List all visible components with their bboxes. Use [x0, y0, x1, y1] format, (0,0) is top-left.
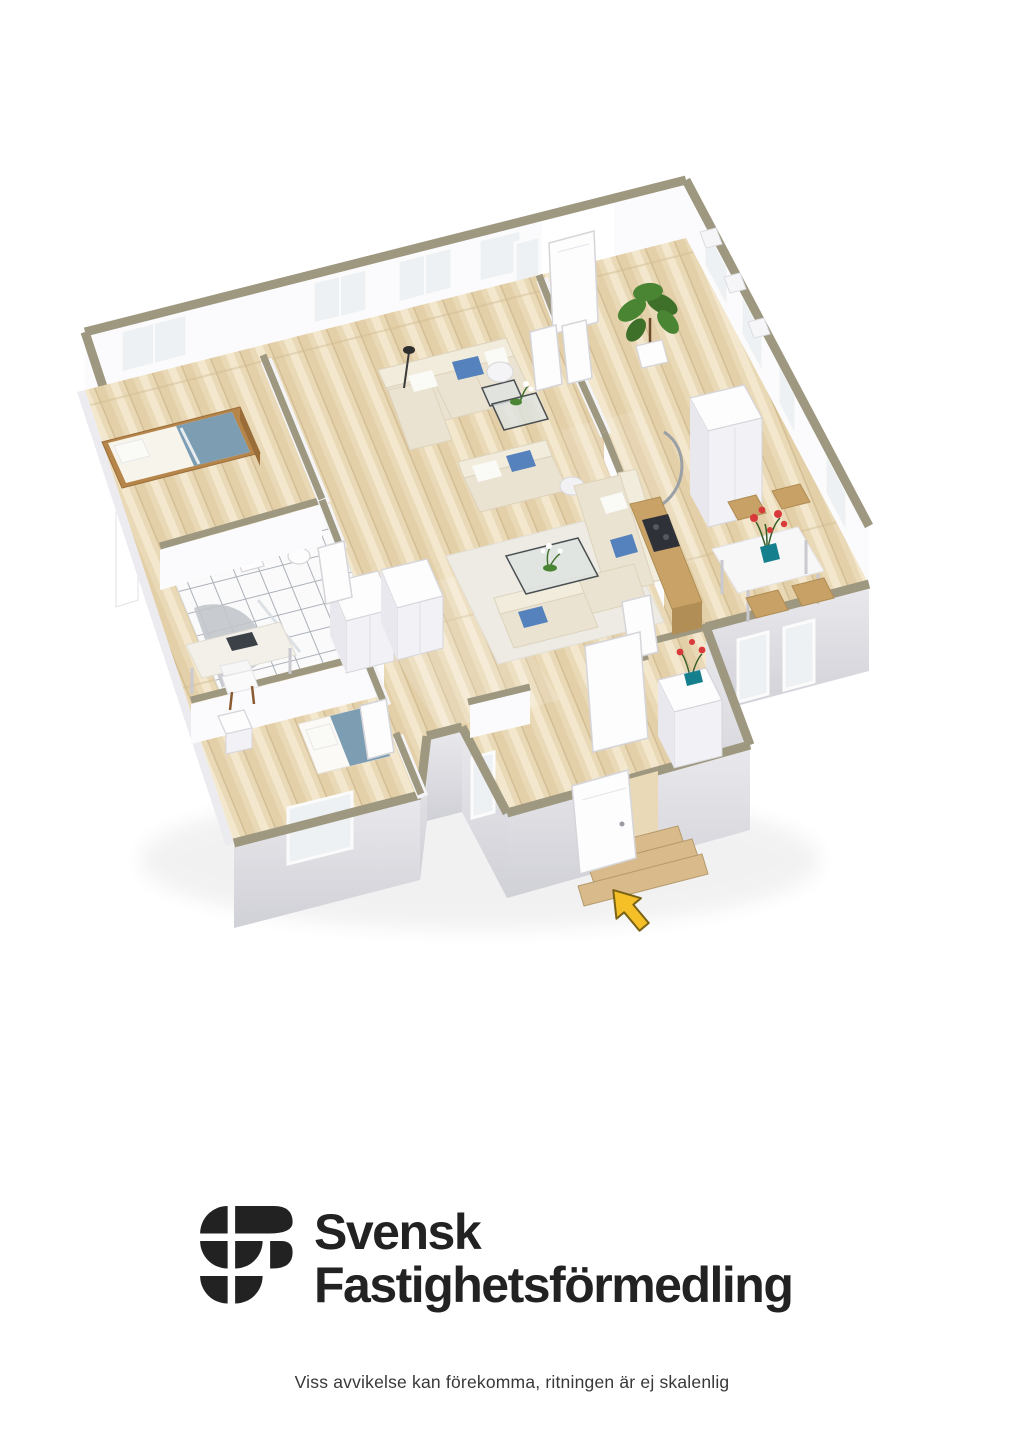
living-door-leaf: [562, 320, 592, 384]
front-door: [572, 770, 636, 874]
disclaimer-text: Viss avvikelse kan förekomma, ritningen …: [0, 1372, 1024, 1393]
floorplan-svg: [0, 0, 1024, 1024]
brand-name: Svensk Fastighetsförmedling: [314, 1206, 792, 1312]
dining-window-s1: [738, 632, 768, 702]
floorplan-page: Svensk Fastighetsförmedling Viss avvikel…: [0, 0, 1024, 1448]
balcony-door: [549, 231, 598, 334]
living-door-leaf: [530, 325, 562, 391]
brand-line-1: Svensk: [314, 1206, 792, 1259]
dining-window-s2: [784, 620, 814, 690]
notch-face-1: [427, 727, 462, 821]
brand-line-2: Fastighetsförmedling: [314, 1259, 792, 1312]
hall-entrance-door: [585, 632, 648, 752]
sf-monogram-icon: [200, 1206, 294, 1306]
door-handle: [620, 822, 625, 827]
brand-logo: Svensk Fastighetsförmedling: [200, 1206, 792, 1312]
floorplan-3d-render: [0, 0, 1024, 1024]
dome-table-lamp: [487, 362, 513, 382]
